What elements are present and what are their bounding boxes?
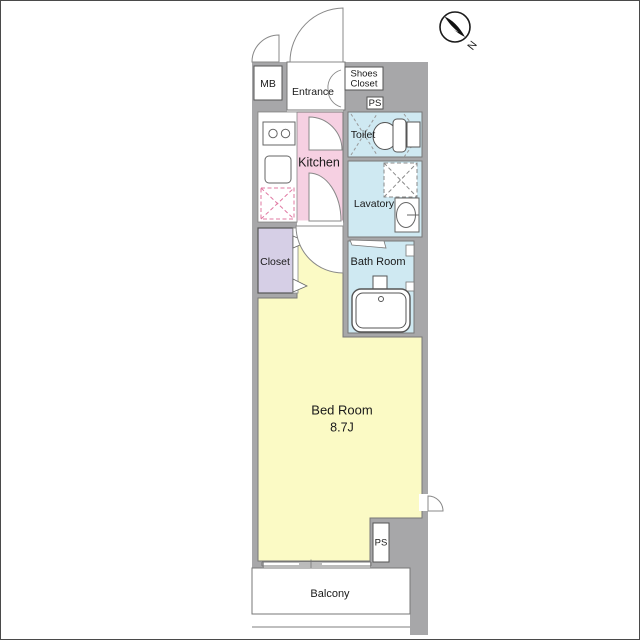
floor-plan: N MB Entrance Shoes Closet PS Toilet Kit… (0, 0, 640, 640)
burner-icon (281, 129, 289, 137)
toilet-tank (393, 119, 406, 152)
washer-space (384, 163, 417, 197)
bathtub-drain (379, 297, 384, 302)
bathtub-outer (352, 289, 410, 332)
bath-room-label: Bath Room (350, 256, 405, 268)
refrigerator-space (261, 188, 294, 219)
side-door-swing (428, 496, 443, 511)
wall-segment (343, 157, 428, 161)
floor-plan-canvas: N MB Entrance Shoes Closet PS Toilet Kit… (0, 0, 640, 640)
entrance-door-swing (290, 8, 343, 62)
kitchen-label: Kitchen (298, 155, 340, 169)
ps-bottom-label: PS (375, 538, 388, 549)
closet-label: Closet (260, 256, 290, 268)
entrance-label: Entrance (292, 86, 334, 98)
bath-wall-notch (406, 282, 414, 291)
kitchen-sink (265, 156, 291, 183)
bed-room-label: Bed Room (311, 402, 372, 417)
bed-room-size: 8.7J (330, 420, 354, 434)
wall-segment (414, 238, 423, 337)
shoes-closet-label-line2: Closet (351, 79, 378, 90)
ps-top-label: PS (369, 98, 382, 109)
lavatory-label: Lavatory (354, 198, 395, 210)
mb-label: MB (260, 78, 276, 90)
toilet-counter (407, 122, 420, 147)
burner-icon (269, 129, 277, 137)
balcony-label: Balcony (310, 588, 350, 600)
bath-step (373, 276, 387, 289)
wall-segment (252, 293, 297, 298)
wall-segment (252, 62, 258, 568)
wall-segment (343, 333, 428, 337)
compass-north-label: N (464, 38, 478, 52)
meter-box-door-swing (252, 35, 279, 62)
wall-segment (258, 222, 297, 228)
compass: N (440, 12, 479, 52)
wall-segment (343, 110, 348, 337)
toilet-label: Toilet (351, 129, 376, 141)
stove (263, 122, 295, 145)
bath-wall-notch (406, 245, 414, 256)
wall-segment (410, 568, 428, 635)
